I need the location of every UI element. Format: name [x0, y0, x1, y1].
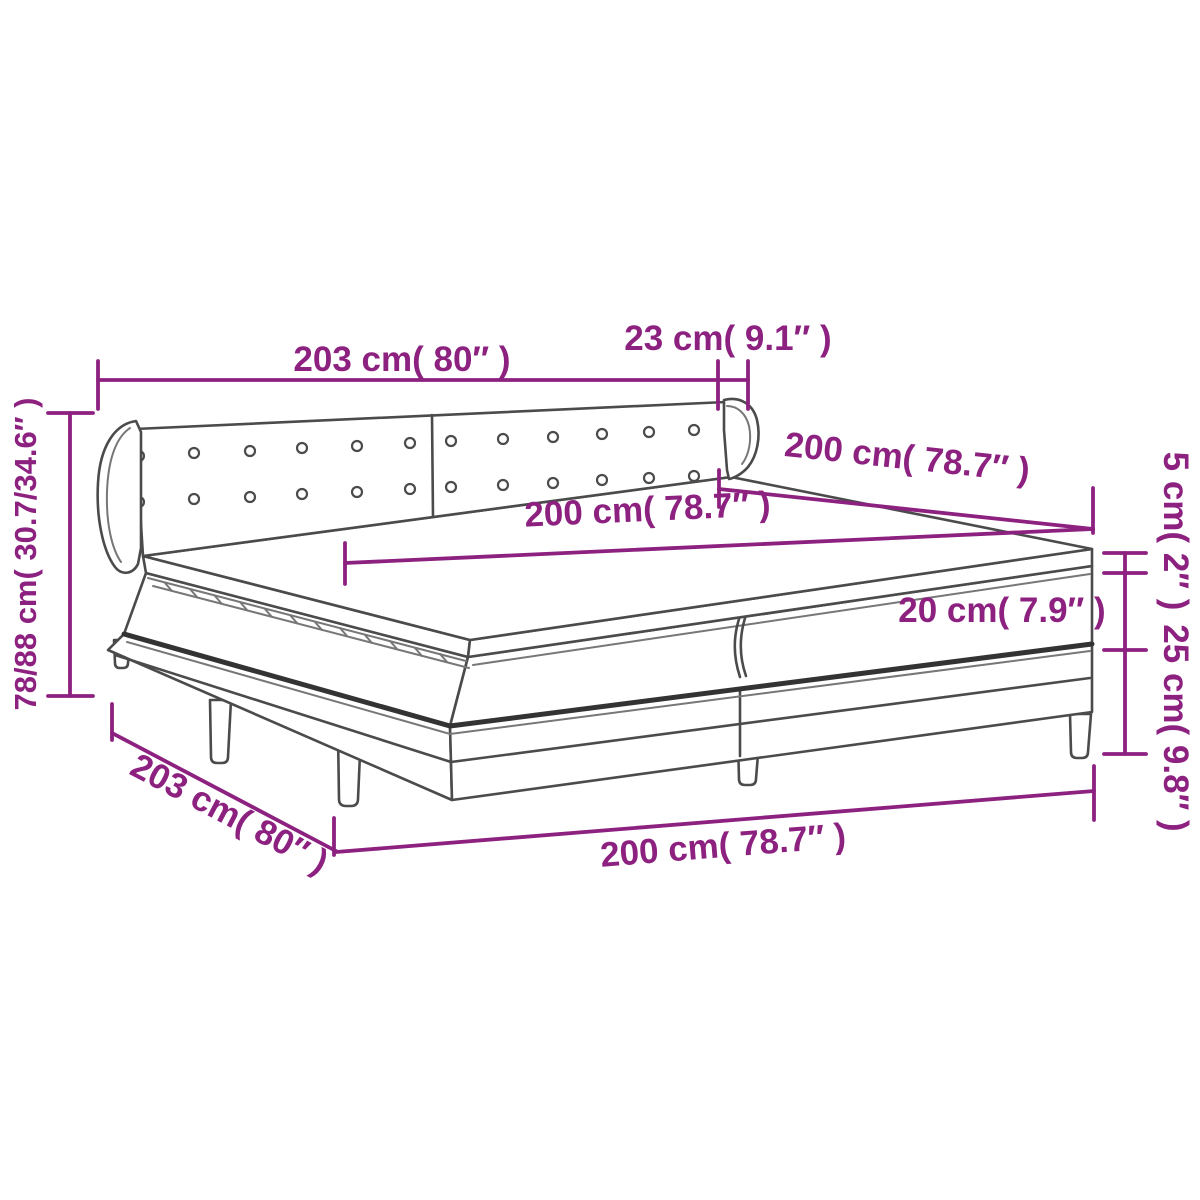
- dim-label-side-depth: 203 cm( 80″ ): [124, 746, 334, 882]
- tufting-button: [498, 434, 508, 444]
- dim-label-base-height: 25 cm( 9.8″ ): [1156, 624, 1195, 831]
- headboard-panel-divider: [432, 415, 433, 517]
- tufting-button: [644, 473, 654, 483]
- tufting-button: [644, 427, 654, 437]
- dim-label-topper-height: 5 cm( 2″ ): [1156, 452, 1195, 611]
- tufting-button: [297, 443, 307, 453]
- bed-leg: [1070, 714, 1091, 758]
- tufting-button: [548, 478, 558, 488]
- tufting-button: [689, 425, 699, 435]
- dim-label-left-height: 78/88 cm( 30.7/34.6″ ): [8, 398, 43, 711]
- tufting-button: [597, 475, 607, 485]
- tufting-button: [245, 446, 255, 456]
- tufting-button: [548, 432, 558, 442]
- tufting-button: [446, 482, 456, 492]
- dim-label-upper-length: 200 cm( 78.7″ ): [783, 425, 1032, 490]
- tufting-button: [189, 494, 199, 504]
- tufting-button: [405, 484, 415, 494]
- dimension-diagram: 203 cm( 80″ ) 23 cm( 9.1″ ) 78/88 cm( 30…: [0, 0, 1200, 1200]
- dim-label-mattress-height: 20 cm( 7.9″ ): [898, 591, 1105, 630]
- tufting-button: [689, 471, 699, 481]
- dim-label-bottom-length: 200 cm( 78.7″ ): [599, 816, 848, 875]
- tufting-button: [352, 441, 362, 451]
- tufting-button: [597, 429, 607, 439]
- tufting-button: [446, 436, 456, 446]
- tufting-button: [498, 480, 508, 490]
- tufting-button: [297, 489, 307, 499]
- tufting-button: [245, 492, 255, 502]
- tufting-button: [352, 487, 362, 497]
- headboard-left-wing: [98, 421, 141, 573]
- tufting-button: [405, 438, 415, 448]
- bed-diagram-canvas: 203 cm( 80″ ) 23 cm( 9.1″ ) 78/88 cm( 30…: [0, 0, 1200, 1200]
- bed-leg: [210, 700, 231, 763]
- dim-label-top-width: 203 cm( 80″ ): [293, 340, 510, 379]
- tufting-button: [189, 448, 199, 458]
- dim-label-wing-depth: 23 cm( 9.1″ ): [624, 319, 831, 358]
